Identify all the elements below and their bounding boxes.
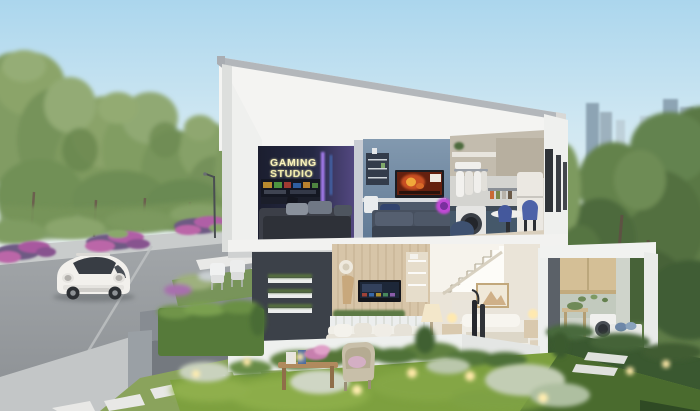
- svg-text:STUDIO: STUDIO: [270, 168, 313, 180]
